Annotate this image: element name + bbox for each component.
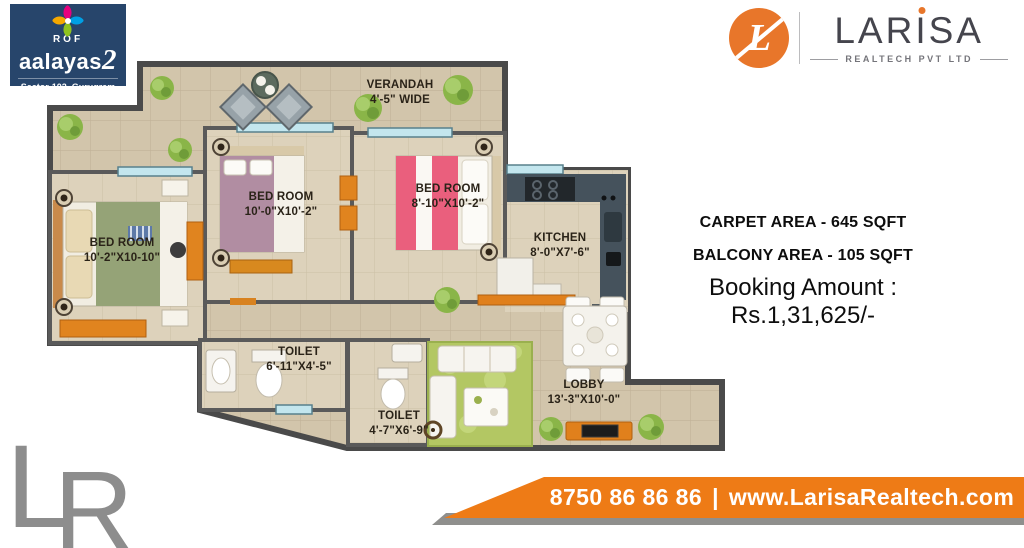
larisa-tagline: REALTECH PVT LTD [810,54,1008,64]
unit-details: CARPET AREA - 645 SQFT BALCONY AREA - 10… [648,214,958,330]
label-toilet-left: TOILET6'-11"X4'-5" [266,345,331,375]
label-bedroom-left: BED ROOM10'-2"X10-10" [84,236,160,266]
contact-ribbon: 8750 86 86 86|www.LarisaRealtech.com [444,477,1024,518]
rof-logo: ROF aalayas2 Sector-102, Gurugram [10,4,126,86]
label-bedroom-right: BED ROOM8'-10"X10'-2" [412,182,485,212]
ribbon-separator: | [702,484,729,510]
flyer-page: L R [0,0,1024,548]
rof-location: Sector-102, Gurugram [18,78,118,92]
label-kitchen: KITCHEN8'-0"X7'-6" [530,231,590,261]
label-toilet-right: TOILET4'-7"X6'-9" [369,409,429,439]
rof-brand: aalayas2 [10,45,126,75]
label-lobby: LOBBY13'-3"X10'-0" [548,378,621,408]
label-verandah: VERANDAH4'-5" WIDE [367,78,434,108]
carpet-area-text: CARPET AREA - 645 SQFT [648,214,958,232]
rof-pinwheel-icon [55,8,81,34]
larisa-divider [799,12,800,64]
watermark-letter-r: R [54,456,133,548]
booking-amount-text: Booking Amount : Rs.1,31,625/- [648,274,958,330]
larisa-wordmark: LARISA [834,12,984,49]
label-bedroom-mid: BED ROOM10'-0"X10'-2" [245,190,318,220]
website-text: www.LarisaRealtech.com [729,484,1014,510]
larisa-logo: L LARISA REALTECH PVT LTD [729,8,1008,68]
larisa-monogram-icon: L [729,8,789,68]
balcony-area-text: BALCONY AREA - 105 SQFT [648,247,958,265]
phone-number: 8750 86 86 86 [550,484,702,510]
